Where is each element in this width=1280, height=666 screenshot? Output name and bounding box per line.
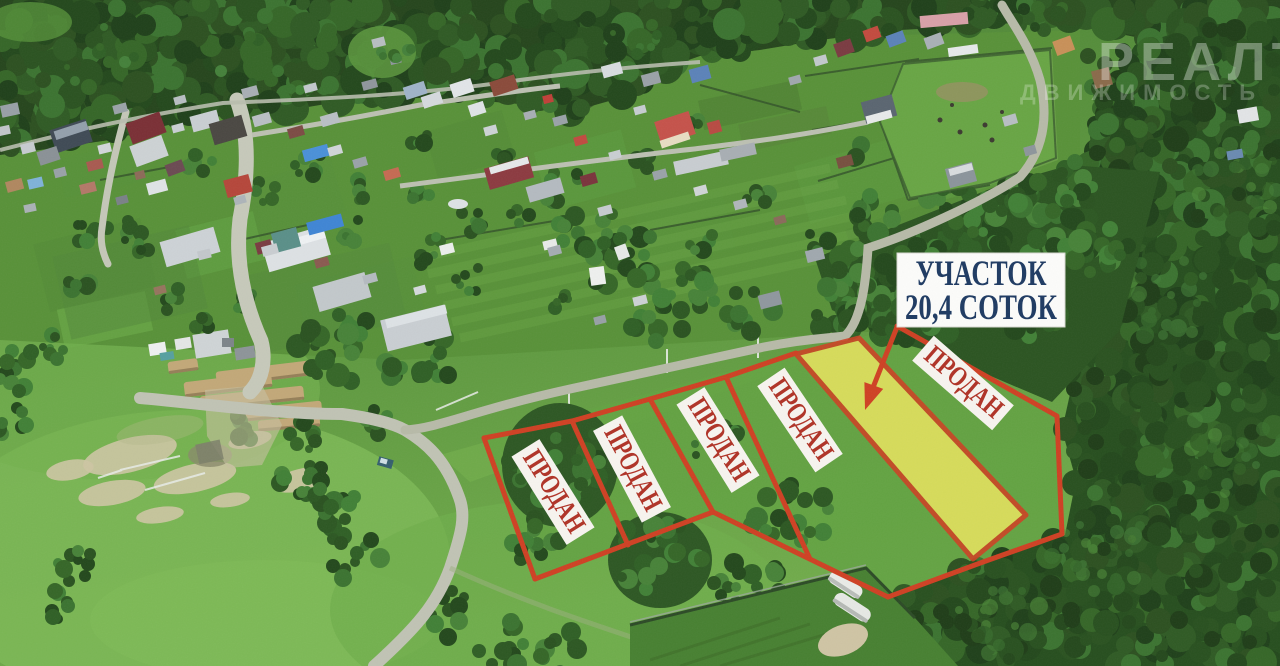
svg-text:ДВИЖИМОСТЬ: ДВИЖИМОСТЬ — [1020, 80, 1263, 105]
